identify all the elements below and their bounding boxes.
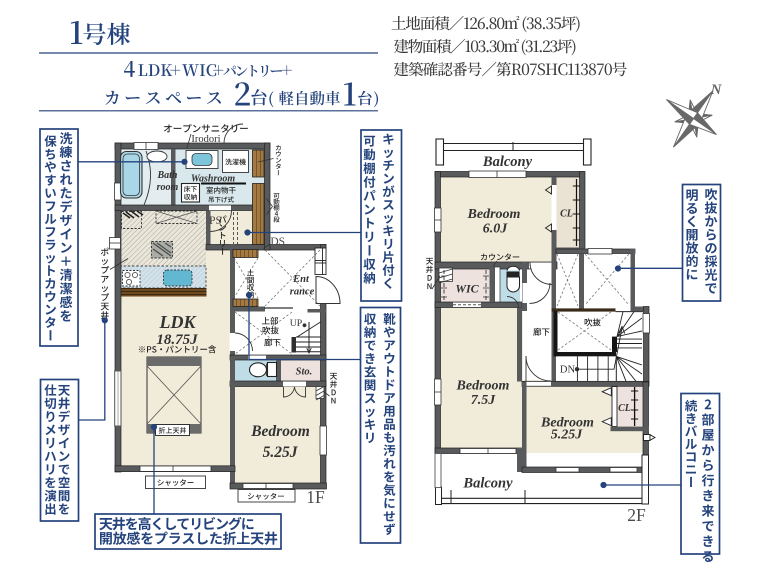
svg-text:2F: 2F xyxy=(627,505,646,525)
svg-text:N: N xyxy=(710,82,723,98)
svg-text:1F: 1F xyxy=(306,487,325,507)
svg-text:LDK: LDK xyxy=(159,312,198,332)
svg-text:CL: CL xyxy=(560,209,573,220)
svg-text:Ent: Ent xyxy=(292,274,310,285)
svg-text:rance: rance xyxy=(290,287,315,298)
svg-text:room: room xyxy=(157,182,179,193)
svg-text:18.75J: 18.75J xyxy=(156,332,198,348)
svg-text:DS: DS xyxy=(270,236,285,248)
svg-text:5.25J: 5.25J xyxy=(263,444,299,461)
svg-text:WIC: WIC xyxy=(455,282,479,296)
svg-text:Bedroom: Bedroom xyxy=(456,379,510,394)
svg-text:UP: UP xyxy=(290,318,303,329)
svg-text:Bedroom: Bedroom xyxy=(467,207,521,222)
svg-text:5.25J: 5.25J xyxy=(551,428,584,443)
svg-text:Balcony: Balcony xyxy=(482,154,533,170)
svg-text:CL: CL xyxy=(618,403,631,414)
svg-text:Balcony: Balcony xyxy=(462,476,513,492)
svg-text:7.5J: 7.5J xyxy=(471,393,497,408)
svg-text:DN: DN xyxy=(560,365,576,376)
svg-text:Bath: Bath xyxy=(156,170,177,181)
svg-text:Irodori: Irodori xyxy=(191,134,220,145)
svg-text:Bedroom: Bedroom xyxy=(250,423,310,440)
svg-text:6.0J: 6.0J xyxy=(483,222,509,237)
svg-text:Sto.: Sto. xyxy=(296,367,313,378)
